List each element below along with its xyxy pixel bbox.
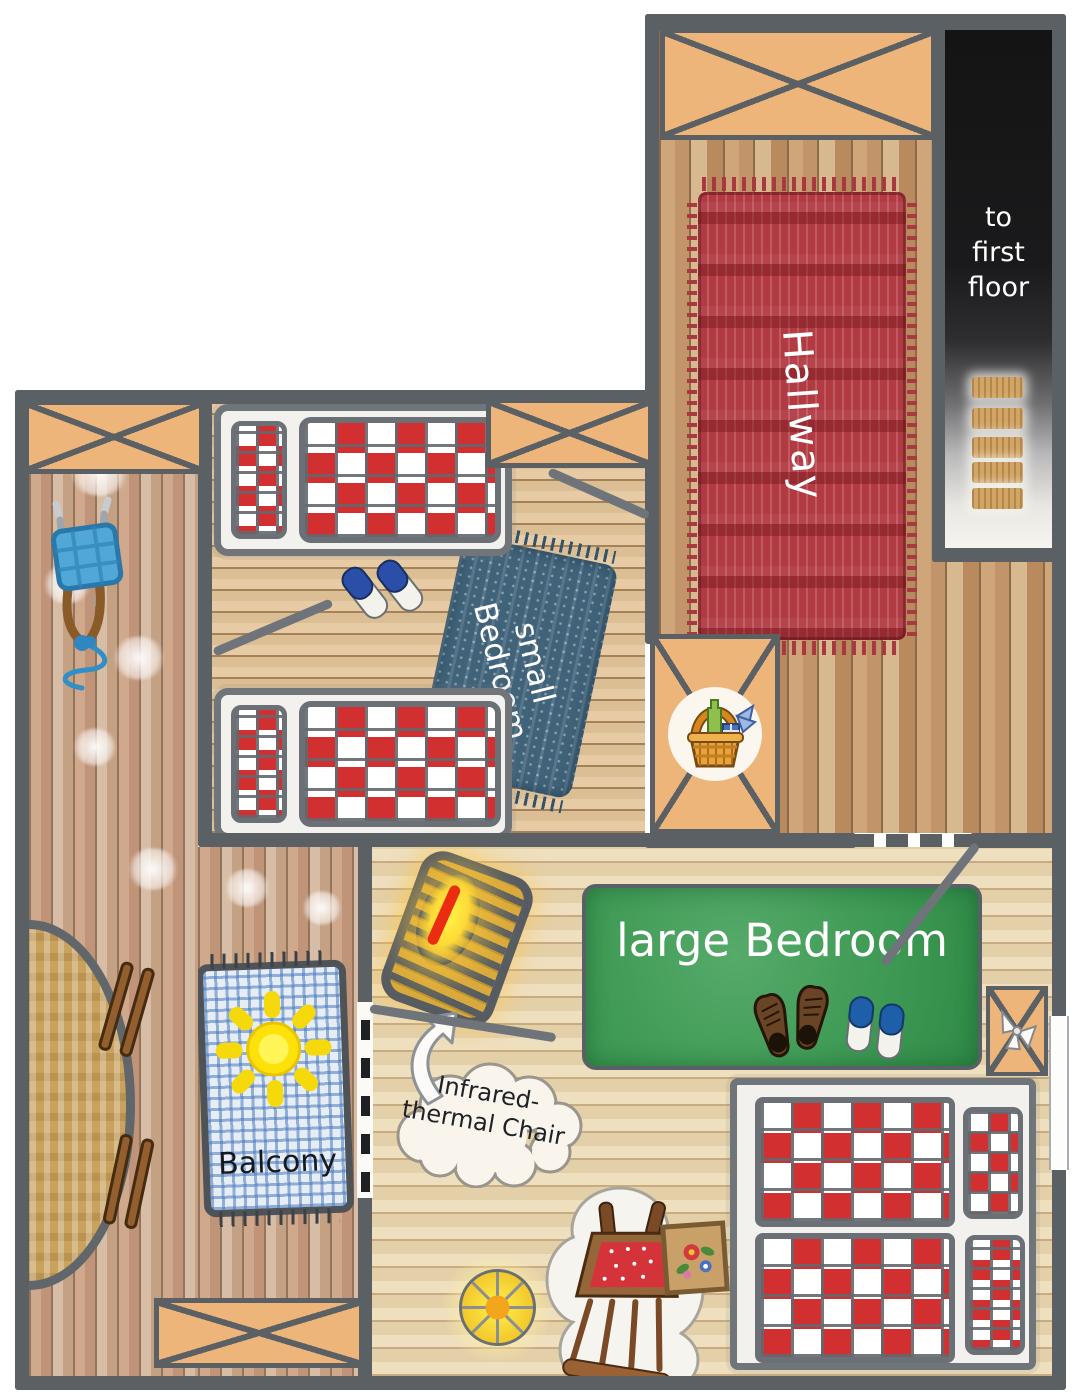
infrared-glow — [404, 866, 491, 975]
rug-fringe — [210, 950, 330, 969]
flower-picture-icon — [660, 1220, 731, 1296]
snow-patch — [73, 728, 117, 766]
quilt-blanket — [299, 701, 501, 827]
stair-step — [972, 462, 1023, 483]
pillow — [965, 1235, 1025, 1355]
double-bed-icon — [730, 1078, 1036, 1370]
wall-hallway-bottom — [645, 833, 856, 848]
single-bed-icon — [214, 404, 512, 556]
quilt-blanket — [755, 1233, 955, 1363]
pillow — [231, 421, 287, 539]
snow-patch — [302, 891, 342, 925]
snow-patch — [224, 869, 270, 907]
quilt-blanket — [299, 417, 501, 543]
rug-fringe — [702, 177, 902, 191]
sled-icon — [38, 492, 133, 692]
room-balcony-wide: Balcony — [198, 847, 359, 1376]
sun-icon — [212, 987, 336, 1111]
stairwell-label: to first floor — [945, 200, 1052, 305]
floor-plan: Balcony — [0, 0, 1077, 1400]
window-seat-marker — [986, 986, 1048, 1076]
balcony-rug: Balcony — [198, 959, 354, 1217]
wall-stairwell-bottom — [932, 548, 1066, 562]
room-small-bedroom: small Bedroom — [212, 404, 645, 833]
wall-bottom-exterior — [15, 1376, 1066, 1390]
window-balcony-bottom — [154, 1298, 364, 1368]
window-basket-marker — [650, 634, 780, 834]
wall-mid-horizontal — [198, 833, 658, 847]
shoes-icon — [750, 977, 845, 1072]
window-small-bedroom — [486, 398, 653, 468]
rug-fringe — [907, 196, 917, 636]
hallway-door-dashes — [852, 834, 974, 847]
picnic-basket-icon — [667, 686, 763, 782]
single-bed-icon — [214, 688, 512, 833]
balcony-door-dashes — [361, 1008, 370, 1192]
slippers-icon — [842, 995, 912, 1070]
wall-outer-right — [1052, 14, 1066, 1390]
wall-outer-left — [15, 390, 29, 1390]
window-hallway-top — [660, 28, 936, 140]
glow-lamp-icon — [440, 1250, 555, 1365]
right-wall-window — [1049, 1016, 1069, 1170]
pillow — [963, 1107, 1023, 1219]
slippers-icon — [340, 546, 430, 641]
wall-hallway-left — [645, 14, 659, 644]
pillow — [231, 705, 287, 823]
stair-step — [972, 488, 1023, 509]
quilt-blanket — [755, 1097, 955, 1227]
stair-step — [972, 408, 1023, 429]
window-balcony-top — [24, 400, 204, 474]
stair-step — [972, 377, 1023, 398]
balcony-room-label: Balcony — [209, 1143, 346, 1183]
snow-patch — [127, 848, 179, 890]
bow-icon — [989, 1001, 1046, 1061]
rug-fringe — [687, 196, 697, 636]
stair-step — [972, 437, 1023, 458]
room-balcony-strip — [29, 404, 198, 1376]
wall-hallway-bottom — [970, 833, 1066, 848]
